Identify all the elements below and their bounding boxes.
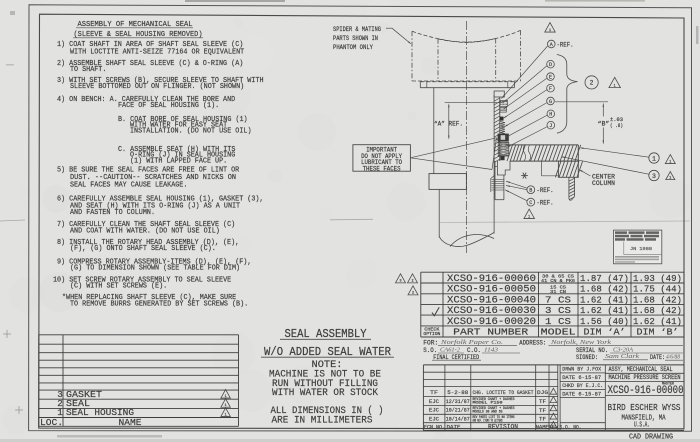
svg-text:(C) WITH SET SCREWS (E).: (C) WITH SET SCREWS (E). (70, 282, 167, 290)
svg-text:SEAL FACES MAY CAUSE LEAKAGE.: SEAL FACES MAY CAUSE LEAKAGE. (70, 182, 187, 190)
svg-text:E: E (549, 74, 552, 80)
svg-text:REVISION: REVISION (488, 424, 518, 431)
svg-text:BIRD ESCHER WYSS: BIRD ESCHER WYSS (608, 402, 681, 413)
svg-text:5) BE SURE THE SEAL FACES ARE: 5) BE SURE THE SEAL FACES ARE FREE OF LI… (57, 166, 240, 174)
svg-text:REV: REV (548, 424, 559, 431)
svg-text:XCSO-916-00060: XCSO-916-00060 (447, 274, 536, 285)
svg-text:“A” REF.: “A” REF. (434, 121, 463, 129)
svg-text:1: 1 (614, 84, 616, 88)
svg-text:J: J (549, 123, 552, 129)
svg-text:TO REMOVE BURRS GENERATED BY S: TO REMOVE BURRS GENERATED BY SET SCREWS … (70, 301, 248, 309)
svg-text:1: 1 (652, 155, 656, 162)
svg-text:(1) WITH LAPPED FACE UP.: (1) WITH LAPPED FACE UP. (130, 158, 227, 166)
svg-text:TF: TF (539, 399, 546, 405)
svg-text:DJG: DJG (537, 390, 548, 396)
svg-text:1: 1 (669, 177, 671, 181)
svg-text:1 CS: 1 CS (545, 317, 571, 327)
svg-text:1.87 (47): 1.87 (47) (580, 273, 629, 284)
svg-text:COLUMN: COLUMN (592, 180, 615, 187)
svg-text:CA61-2: CA61-2 (440, 347, 460, 353)
svg-text:XCSO-916-00000: XCSO-916-00000 (608, 385, 684, 397)
svg-text:4/6/88: 4/6/88 (666, 354, 680, 361)
svg-text:3 CS: 3 CS (545, 306, 571, 316)
svg-text:FOR:: FOR: (423, 339, 438, 346)
svg-text:XCSO-916-00030: XCSO-916-00030 (447, 306, 536, 317)
svg-text:CHECK: CHECK (424, 328, 440, 332)
svg-text:SPIDER & MATING: SPIDER & MATING (333, 26, 381, 33)
svg-text:-REF.: -REF. (537, 187, 554, 194)
svg-text:41 CN & PK6: 41 CN & PK6 (541, 279, 575, 284)
svg-text:3: 3 (652, 173, 656, 180)
svg-text:Norfolk Paper Co.: Norfolk Paper Co. (440, 339, 503, 346)
svg-text:1.68 (42): 1.68 (42) (580, 284, 629, 295)
svg-text:1: 1 (225, 413, 227, 417)
svg-text:10/21/87: 10/21/87 (446, 408, 470, 414)
svg-text:AND COAT WITH WATER. (DO NOT U: AND COAT WITH WATER. (DO NOT USE OIL) (70, 227, 220, 235)
svg-text:-REF.: -REF. (537, 199, 554, 206)
svg-text:A: A (550, 42, 553, 48)
svg-text:1.62 (41): 1.62 (41) (580, 294, 629, 305)
svg-text:2: 2 (590, 80, 594, 87)
svg-text:-REF.: -REF. (557, 41, 574, 48)
svg-text:PARTS SHOWN IN: PARTS SHOWN IN (333, 35, 378, 42)
svg-text:WITH LOCTITE ANTI-SEIZE 77164: WITH LOCTITE ANTI-SEIZE 77164 OR EQUIVAL… (70, 49, 245, 57)
svg-text:TF: TF (539, 408, 546, 414)
svg-text:5-2-88: 5-2-88 (447, 389, 469, 396)
svg-text:Sam Clark: Sam Clark (605, 353, 640, 360)
svg-text:EJC: EJC (429, 408, 439, 414)
svg-text:OPTION: OPTION (423, 333, 441, 337)
svg-text:7 CS: 7 CS (545, 295, 571, 305)
svg-text:MODELS 30 AND 65: MODELS 30 AND 65 (473, 411, 503, 415)
svg-text:F: F (549, 86, 552, 92)
svg-text:FINAL CERTIFIED: FINAL CERTIFIED (433, 354, 479, 361)
svg-text:WITH WATER OR STOCK: WITH WATER OR STOCK (272, 388, 378, 399)
svg-text:1143: 1143 (484, 346, 498, 353)
svg-text:DATE: DATE (447, 424, 462, 431)
svg-text:1: 1 (528, 215, 530, 219)
svg-text:NAME: NAME (119, 417, 142, 428)
svg-text:ARE IN MILLIMETERS: ARE IN MILLIMETERS (272, 415, 373, 426)
svg-text:DATE:: DATE: (650, 354, 665, 361)
svg-text:D: D (549, 62, 552, 68)
svg-text:TO SHAFT.: TO SHAFT. (70, 66, 106, 74)
svg-text:DIM ‘A’: DIM ‘A’ (584, 326, 626, 337)
svg-text:DATE 6-15-87: DATE 6-15-87 (562, 390, 601, 397)
svg-text:1.75 (44): 1.75 (44) (633, 284, 682, 295)
svg-text:Norfolk, New York: Norfolk, New York (550, 339, 612, 346)
svg-text:12/31/87: 12/31/87 (446, 399, 470, 405)
svg-text:(F), (G) ONTO SHAFT SEAL SLEEV: (F), (G) ONTO SHAFT SEAL SLEEVE (C). (70, 245, 216, 253)
svg-text:ASSY, MECHANICAL SEAL: ASSY, MECHANICAL SEAL (609, 366, 673, 373)
svg-text:1.62 (41): 1.62 (41) (633, 316, 682, 327)
svg-text:1: 1 (549, 29, 551, 33)
svg-text:“B”: “B” (598, 121, 610, 128)
svg-text:DRWN BY J.FOX: DRWN BY J.FOX (562, 366, 602, 373)
svg-text:H: H (549, 112, 552, 118)
svg-text:U.S.A.: U.S.A. (634, 422, 650, 430)
svg-text:1.68 (42): 1.68 (42) (633, 294, 682, 305)
svg-text:DATE 6-15-87: DATE 6-15-87 (562, 374, 601, 381)
svg-text:AND FASTEN TO COLUMN.: AND FASTEN TO COLUMN. (70, 209, 155, 217)
svg-text:G: G (549, 99, 552, 105)
svg-text:2: 2 (412, 292, 414, 296)
svg-text:EJC: EJC (429, 399, 439, 405)
svg-text:1.56 (40): 1.56 (40) (580, 316, 629, 327)
svg-text:CAD DRAWING: CAD DRAWING (629, 434, 673, 442)
svg-text:TF: TF (430, 389, 439, 396)
svg-text:1: 1 (669, 160, 671, 164)
svg-text:MACHINE PRESSURE SCREEN: MACHINE PRESSURE SCREEN (609, 374, 681, 381)
svg-text:10/14/87: 10/14/87 (446, 417, 470, 423)
svg-text:1.62 (41): 1.62 (41) (580, 305, 629, 316)
svg-text:SIGNED:: SIGNED: (576, 354, 598, 361)
svg-text:(G) TO DIMENSION SHOWN (SEE TA: (G) TO DIMENSION SHOWN (SEE TABLE FOR DI… (70, 265, 240, 273)
svg-text:MODEL: MODEL (541, 326, 576, 337)
svg-text:B: B (529, 187, 532, 193)
svg-text:31 CN: 31 CN (550, 290, 566, 295)
svg-text:EJC: EJC (429, 417, 439, 423)
svg-text:XCSO-916-00040: XCSO-916-00040 (447, 295, 536, 306)
svg-text:1.68 (42): 1.68 (42) (633, 305, 682, 316)
svg-text:THESE FACES: THESE FACES (363, 165, 401, 172)
svg-text:ADDRESS:: ADDRESS: (519, 339, 546, 346)
svg-text:SLEEVE BOTTOMED OUT ON FLINGER: SLEEVE BOTTOMED OUT ON FLINGER. (NOT SHO… (70, 83, 244, 91)
svg-text:LOC.: LOC. (40, 417, 63, 428)
svg-text:C: C (529, 200, 532, 206)
svg-text:PART NUMBER: PART NUMBER (453, 326, 528, 337)
svg-text:CHG. LOCTITE TO GASKET: CHG. LOCTITE TO GASKET (473, 390, 535, 396)
svg-text:FACE OF SEAL HOUSING (1).: FACE OF SEAL HOUSING (1). (118, 102, 219, 110)
svg-text:JN 1988: JN 1988 (630, 246, 652, 252)
svg-text:XCSO-916-00050: XCSO-916-00050 (447, 285, 536, 296)
svg-text:ECN NO.: ECN NO. (424, 424, 445, 431)
svg-text:PHANTOM ONLY: PHANTOM ONLY (333, 44, 373, 51)
svg-text:3: 3 (399, 280, 401, 284)
svg-text:DIM ‘B’: DIM ‘B’ (637, 326, 679, 337)
svg-text:2: 2 (411, 280, 413, 284)
svg-text:TF: TF (539, 417, 546, 423)
svg-text:1.93 (49): 1.93 (49) (633, 273, 682, 284)
svg-text:INSTALLATION. (DO NOT USE OIL): INSTALLATION. (DO NOT USE OIL) (130, 128, 252, 136)
svg-text:CHKD BY E.J.C.: CHKD BY E.J.C. (562, 382, 603, 389)
svg-text:NAME: NAME (536, 424, 550, 431)
svg-text:S.O. NO.: S.O. NO. (560, 424, 582, 431)
svg-text:( .8): ( .8) (610, 123, 623, 129)
svg-text:MODEL P150: MODEL P150 (473, 402, 503, 406)
